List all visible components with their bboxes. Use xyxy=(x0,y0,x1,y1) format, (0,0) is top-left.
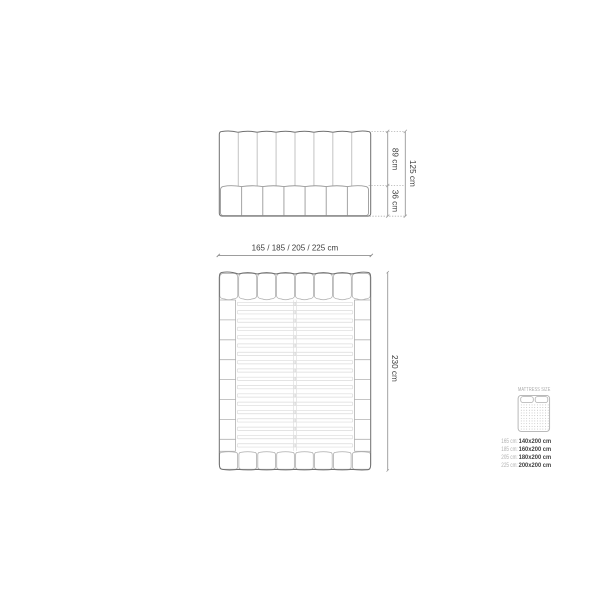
svg-text:165 / 185 / 205 / 225 cm: 165 / 185 / 205 / 225 cm xyxy=(252,243,339,252)
svg-text:160x200 cm: 160x200 cm xyxy=(519,446,552,453)
svg-text:180x200 cm: 180x200 cm xyxy=(519,454,552,461)
svg-text:36 cm: 36 cm xyxy=(390,190,399,212)
svg-text:165 cm:: 165 cm: xyxy=(501,438,518,445)
svg-text:200x200 cm: 200x200 cm xyxy=(519,462,552,469)
svg-text:230 cm: 230 cm xyxy=(390,355,399,382)
svg-text:89 cm: 89 cm xyxy=(390,148,399,170)
svg-text:205 cm:: 205 cm: xyxy=(501,454,518,461)
svg-text:225 cm:: 225 cm: xyxy=(501,462,518,469)
svg-text:140x200 cm: 140x200 cm xyxy=(519,438,552,445)
svg-text:185 cm:: 185 cm: xyxy=(501,446,518,453)
svg-text:125 cm: 125 cm xyxy=(408,160,417,187)
svg-text:MATTRESS SIZE: MATTRESS SIZE xyxy=(518,387,551,393)
